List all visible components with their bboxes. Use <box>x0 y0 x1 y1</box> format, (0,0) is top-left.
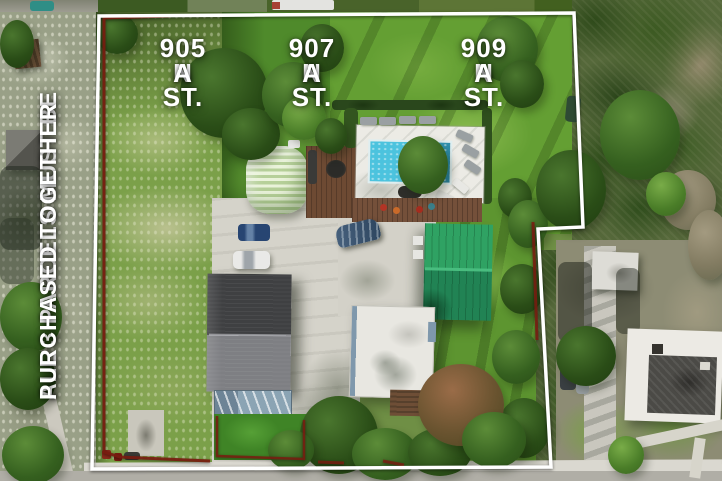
side-note-line2: PURCHASED TOGETHER <box>35 103 61 400</box>
parcel-line-red <box>533 222 537 340</box>
side-note: ALL 3 PARCELS MUST BE PURCHASED TOGETHER <box>35 80 87 400</box>
parcel-label-909-line2: A ST. <box>459 61 509 110</box>
aerial-listing-photo: 905 N A ST. 907 N A ST. 909 N A ST. ALL … <box>0 0 722 481</box>
parcel-label-907: 907 N A ST. <box>237 36 337 61</box>
parcel-label-909: 909 N A ST. <box>409 36 509 61</box>
parcel-label-905-line2: A ST. <box>158 61 208 110</box>
boundary-overlay <box>0 0 722 481</box>
parcel-line-red <box>217 416 304 459</box>
parcel-line-red <box>318 461 404 465</box>
parcel-label-905: 905 N A ST. <box>108 36 208 61</box>
parcel-label-907-line2: A ST. <box>287 61 337 110</box>
